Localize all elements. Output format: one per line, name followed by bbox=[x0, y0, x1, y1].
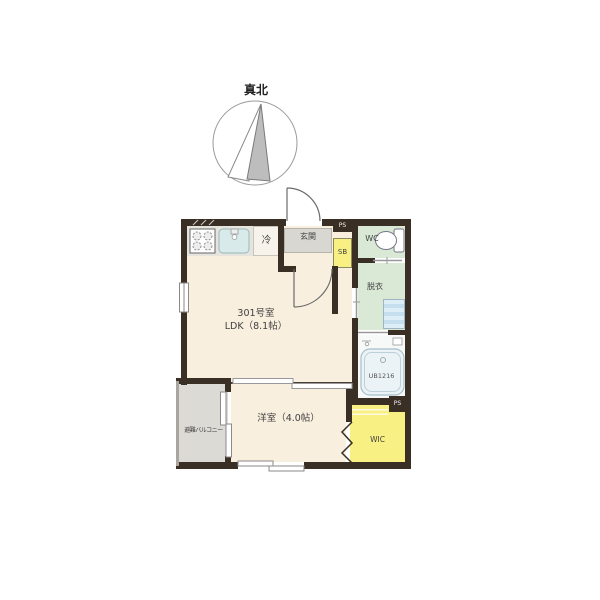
pipe-space-top-label: PS bbox=[333, 220, 352, 231]
wic-label: WIC bbox=[350, 434, 405, 445]
wall-right bbox=[405, 219, 411, 469]
east-column-wall-upper bbox=[352, 219, 358, 288]
entrance-south-stub bbox=[278, 266, 296, 272]
wall-top-left bbox=[181, 219, 286, 226]
room-number: 301号室 bbox=[237, 309, 274, 319]
balcony-left-rail bbox=[176, 381, 179, 466]
dressing-room-label: 脱衣 bbox=[358, 281, 392, 293]
east-column-wall-lower bbox=[352, 318, 358, 404]
wic-west-wall bbox=[346, 383, 352, 422]
bedroom-west-stub-top bbox=[225, 384, 231, 392]
north-arrow-icon bbox=[213, 101, 297, 185]
balcony-floor bbox=[179, 384, 228, 462]
refrigerator-label: 冷 bbox=[253, 234, 280, 248]
bedroom-label: 洋室（4.0帖） bbox=[231, 412, 346, 425]
ldk-label: 301号室 LDK（8.1帖） bbox=[197, 306, 315, 334]
wall-left-lower bbox=[181, 312, 187, 385]
floor-plan: 真北 301号室 LDK（8.1帖） 洋室（4.0帖） 玄関 冷 PS SB W… bbox=[0, 0, 600, 600]
wall-bottom-right bbox=[304, 462, 411, 469]
balcony-top-wall bbox=[176, 378, 231, 384]
wc-label: WC bbox=[358, 233, 386, 245]
bath-floor bbox=[358, 335, 405, 398]
wic-shelf bbox=[352, 406, 388, 418]
balcony-label: 避難バルコニー bbox=[179, 426, 228, 436]
entrance-label: 玄関 bbox=[284, 231, 332, 243]
wall-left-upper bbox=[181, 219, 187, 283]
ldk-size: LDK（8.1帖） bbox=[225, 322, 287, 332]
entrance-door-arc-icon bbox=[287, 188, 320, 221]
entrance-east-wall bbox=[332, 266, 338, 314]
washing-machine-icon bbox=[383, 299, 405, 329]
bedroom-west-stub-bottom bbox=[225, 456, 231, 464]
kitchen-counter bbox=[187, 226, 253, 256]
window-south-icon bbox=[238, 461, 304, 471]
bath-label: UB1216 bbox=[358, 371, 405, 381]
pipe-space-bottom-label: PS bbox=[389, 398, 406, 410]
bath-divider-wall bbox=[388, 330, 405, 335]
wc-divider-wall bbox=[355, 258, 375, 263]
shoe-box-label: SB bbox=[333, 246, 352, 258]
north-label: 真北 bbox=[230, 83, 282, 96]
